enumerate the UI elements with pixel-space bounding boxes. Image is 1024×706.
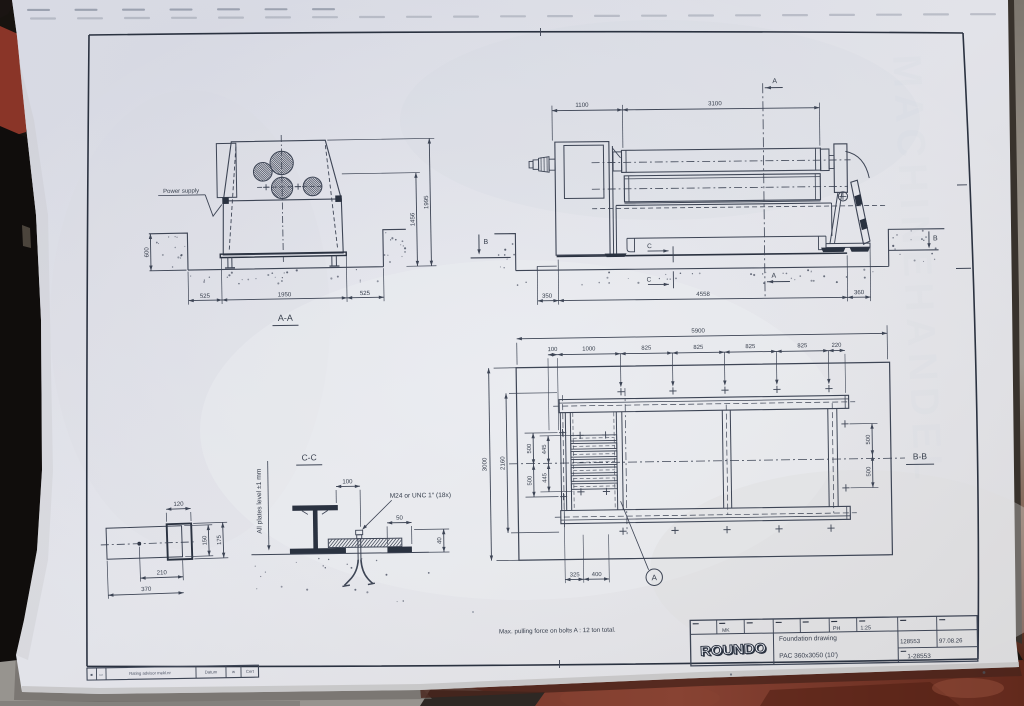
svg-text:C: C — [647, 243, 652, 250]
svg-text:C: C — [647, 277, 652, 284]
svg-text:A-A: A-A — [278, 313, 293, 323]
svg-text:A: A — [772, 78, 777, 85]
svg-text:PAC 360x3050 (10′): PAC 360x3050 (10′) — [779, 652, 838, 660]
svg-text:1100: 1100 — [575, 102, 589, 109]
svg-text:PH: PH — [833, 626, 841, 632]
svg-text:2160: 2160 — [499, 456, 506, 470]
svg-text:A: A — [652, 573, 658, 582]
svg-text:MK: MK — [722, 628, 730, 634]
svg-text:1-28553: 1-28553 — [907, 653, 931, 660]
svg-text:500: 500 — [866, 466, 872, 477]
svg-text:360: 360 — [854, 289, 865, 296]
svg-text:40: 40 — [436, 537, 443, 544]
svg-text:500: 500 — [527, 443, 533, 454]
svg-text:3100: 3100 — [708, 100, 722, 107]
svg-text:Foundation drawing: Foundation drawing — [779, 635, 837, 643]
svg-text:50: 50 — [396, 515, 403, 522]
svg-text:128553: 128553 — [900, 639, 921, 645]
svg-text:5900: 5900 — [691, 327, 705, 334]
svg-text:500: 500 — [527, 475, 533, 486]
svg-text:825: 825 — [641, 346, 652, 352]
svg-text:1950: 1950 — [278, 291, 292, 298]
svg-text:220: 220 — [832, 343, 843, 349]
svg-text:825: 825 — [745, 344, 756, 350]
svg-text:445: 445 — [542, 472, 548, 483]
svg-text:Rating advisor mekl.nr: Rating advisor mekl.nr — [129, 670, 171, 676]
svg-text:B: B — [483, 239, 488, 246]
svg-text:350: 350 — [542, 293, 553, 300]
svg-text:120: 120 — [173, 501, 184, 508]
svg-text:825: 825 — [797, 343, 808, 349]
svg-text:M24 or UNC 1″ (18x): M24 or UNC 1″ (18x) — [390, 492, 451, 500]
svg-text:400: 400 — [592, 572, 603, 578]
svg-text:600: 600 — [143, 247, 150, 258]
svg-text:1995: 1995 — [423, 195, 430, 209]
svg-text:Datum: Datum — [205, 669, 218, 674]
svg-text:100: 100 — [548, 347, 559, 353]
svg-text:100: 100 — [342, 478, 353, 485]
svg-text:500: 500 — [866, 434, 872, 445]
svg-text:445: 445 — [542, 444, 548, 455]
svg-text:All plates level ±1 mm: All plates level ±1 mm — [256, 468, 264, 534]
svg-text:370: 370 — [141, 586, 152, 593]
svg-text:325: 325 — [570, 572, 581, 578]
svg-text:B-B: B-B — [913, 451, 928, 461]
svg-text:1456: 1456 — [409, 212, 416, 226]
svg-text:Cert: Cert — [246, 669, 255, 674]
svg-text:525: 525 — [200, 293, 211, 300]
svg-text:Power supply: Power supply — [163, 188, 199, 195]
svg-text:C-C: C-C — [301, 452, 316, 462]
svg-text:525: 525 — [360, 290, 371, 297]
svg-text:▭: ▭ — [99, 672, 103, 677]
svg-text:1000: 1000 — [582, 346, 596, 352]
svg-text:A: A — [771, 273, 776, 280]
svg-text:4558: 4558 — [696, 291, 710, 298]
svg-text:825: 825 — [693, 345, 704, 351]
svg-text:B: B — [933, 235, 938, 242]
svg-text:1:25: 1:25 — [860, 625, 871, 631]
svg-text:3000: 3000 — [481, 457, 488, 471]
svg-text:150: 150 — [202, 535, 208, 546]
svg-text:97.08.26: 97.08.26 — [939, 638, 963, 644]
svg-text:175: 175 — [217, 534, 223, 545]
svg-text:210: 210 — [157, 569, 168, 576]
